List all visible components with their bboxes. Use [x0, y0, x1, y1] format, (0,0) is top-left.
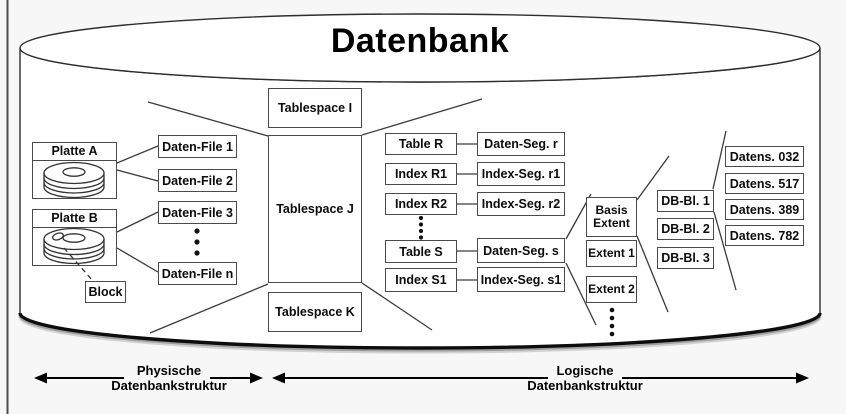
data-file-n-box: Daten-File n — [158, 262, 237, 285]
logical-structure-title: Logische — [515, 363, 655, 378]
record-782-box: Datens. 782 — [725, 225, 804, 246]
db-block-1-box: DB-Bl. 1 — [657, 190, 714, 212]
ellipsis-dots-extents — [610, 308, 615, 337]
ellipsis-dots-segments — [419, 216, 423, 240]
logical-structure-label: Logische Datenbankstruktur — [515, 363, 655, 394]
extent-2-box: Extent 2 — [586, 276, 637, 303]
physical-structure-subtitle: Datenbankstruktur — [99, 378, 239, 393]
disk-b-box: Platte B — [32, 209, 117, 266]
table-s-box: Table S — [385, 240, 457, 263]
index-r1-box: Index R1 — [385, 163, 457, 185]
record-517-box: Datens. 517 — [725, 173, 804, 194]
disk-a-label: Platte A — [33, 143, 116, 161]
index-seg-r2-box: Index-Seg. r2 — [477, 192, 565, 216]
daten-seg-r-box: Daten-Seg. r — [477, 132, 565, 156]
cylinder-bottom-shadow — [20, 313, 820, 352]
index-r2-box: Index R2 — [385, 193, 457, 215]
index-seg-r1-box: Index-Seg. r1 — [477, 162, 565, 186]
index-s1-box: Index S1 — [385, 268, 457, 292]
diagram-title: Datenbank — [250, 22, 590, 61]
record-032-box: Datens. 032 — [725, 146, 804, 167]
extent-1-box: Extent 1 — [586, 240, 637, 267]
record-389-box: Datens. 389 — [725, 199, 804, 220]
table-r-box: Table R — [385, 133, 457, 155]
index-seg-s1-box: Index-Seg. s1 — [477, 267, 565, 292]
tablespace-k-box: Tablespace K — [268, 292, 362, 332]
physical-structure-label: Physische Datenbankstruktur — [99, 363, 239, 394]
data-file-3-box: Daten-File 3 — [158, 201, 237, 224]
data-file-2-box: Daten-File 2 — [158, 169, 237, 192]
ellipsis-dots-files — [194, 228, 199, 255]
db-block-3-box: DB-Bl. 3 — [657, 247, 714, 269]
daten-seg-s-box: Daten-Seg. s — [477, 238, 565, 263]
db-block-2-box: DB-Bl. 2 — [657, 218, 714, 240]
diagram-stage: Datenbank Tablespace I Tablespace J Tabl… — [0, 0, 846, 414]
tablespace-i-box: Tablespace I — [268, 88, 362, 128]
block-box: Block — [85, 281, 126, 303]
disk-b-label: Platte B — [33, 210, 116, 228]
logical-structure-subtitle: Datenbankstruktur — [515, 378, 655, 393]
data-file-1-box: Daten-File 1 — [158, 135, 237, 158]
physical-structure-title: Physische — [99, 363, 239, 378]
disk-a-box: Platte A — [32, 142, 117, 199]
tablespace-j-box: Tablespace J — [268, 135, 362, 283]
basis-extent-box: Basis Extent — [586, 197, 637, 237]
